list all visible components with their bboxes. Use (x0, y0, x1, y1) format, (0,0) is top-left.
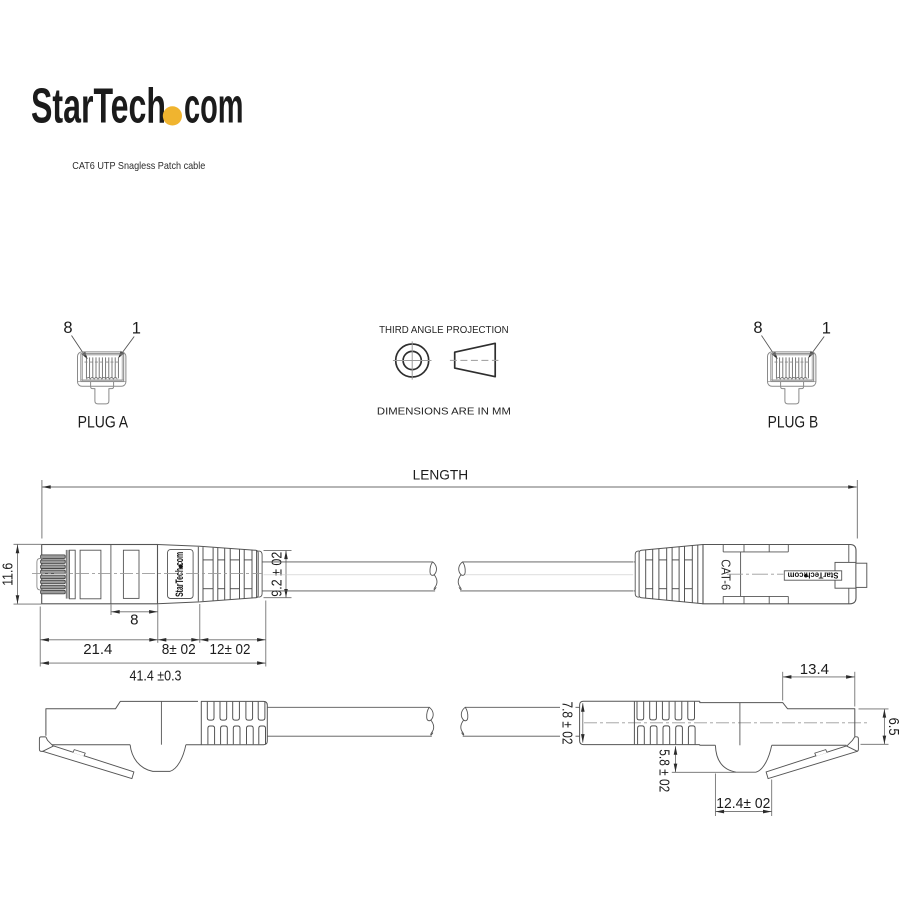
svg-text:CAT6 UTP Snagless Patch cable: CAT6 UTP Snagless Patch cable (72, 161, 205, 172)
svg-text:com: com (184, 78, 244, 133)
svg-text:9.2 ± 02: 9.2 ± 02 (268, 552, 285, 597)
svg-text:13.4: 13.4 (800, 661, 829, 678)
svg-text:8: 8 (63, 319, 72, 337)
svg-text:41.4 ±0.3: 41.4 ±0.3 (130, 667, 182, 684)
svg-text:5.8 ± 02: 5.8 ± 02 (656, 749, 673, 792)
svg-text:6.5: 6.5 (885, 718, 900, 736)
svg-text:12.4± 02: 12.4± 02 (716, 795, 770, 812)
svg-text:11.6: 11.6 (0, 563, 17, 586)
svg-text:21.4: 21.4 (83, 641, 112, 658)
svg-text:1: 1 (822, 319, 831, 337)
svg-text:StarTech: StarTech (31, 78, 166, 133)
svg-text:DIMENSIONS ARE IN MM: DIMENSIONS ARE IN MM (377, 406, 511, 418)
svg-text:PLUG B: PLUG B (768, 413, 819, 432)
svg-text:7.8 ± 02: 7.8 ± 02 (559, 702, 576, 745)
svg-text:CAT-6: CAT-6 (718, 559, 733, 590)
svg-text:PLUG A: PLUG A (78, 413, 129, 432)
svg-text:StarTech.com: StarTech.com (174, 552, 186, 597)
svg-text:8: 8 (130, 612, 138, 629)
svg-text:8: 8 (753, 319, 762, 337)
svg-text:8± 02: 8± 02 (162, 641, 196, 658)
svg-text:12± 02: 12± 02 (210, 641, 251, 658)
svg-text:LENGTH: LENGTH (413, 467, 469, 483)
svg-text:StarTech.com: StarTech.com (787, 570, 838, 580)
svg-text:THIRD ANGLE PROJECTION: THIRD ANGLE PROJECTION (379, 324, 509, 336)
svg-text:1: 1 (132, 319, 141, 337)
